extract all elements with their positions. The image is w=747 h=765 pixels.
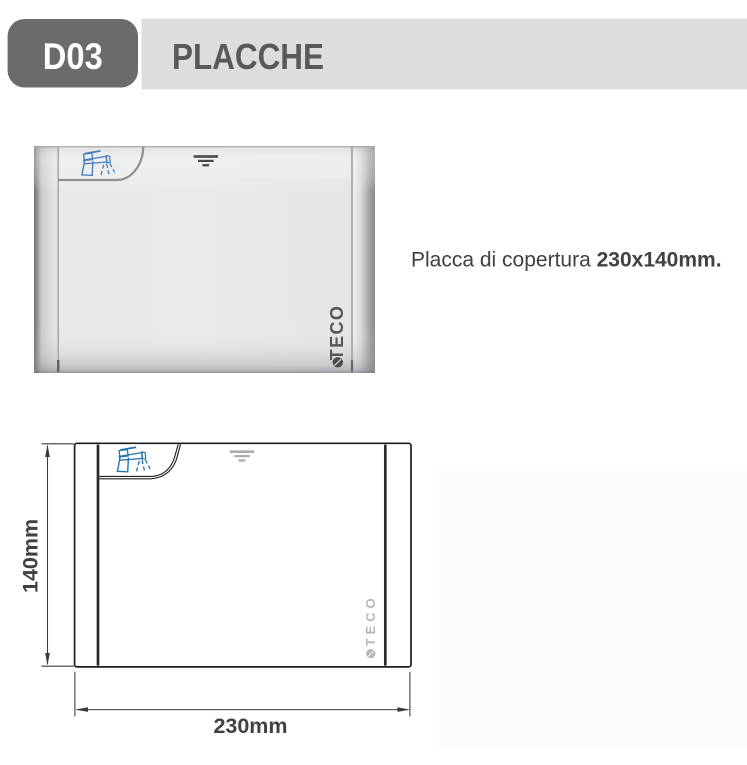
svg-text:TECO: TECO (327, 305, 347, 361)
svg-text:D03: D03 (43, 36, 103, 77)
svg-text:PLACCHE: PLACCHE (172, 36, 324, 77)
svg-text:230mm: 230mm (213, 714, 287, 738)
svg-text:TECO: TECO (363, 594, 378, 646)
svg-text:140mm: 140mm (19, 519, 43, 593)
svg-text:Placca di copertura 230x140mm.: Placca di copertura 230x140mm. (411, 249, 722, 272)
